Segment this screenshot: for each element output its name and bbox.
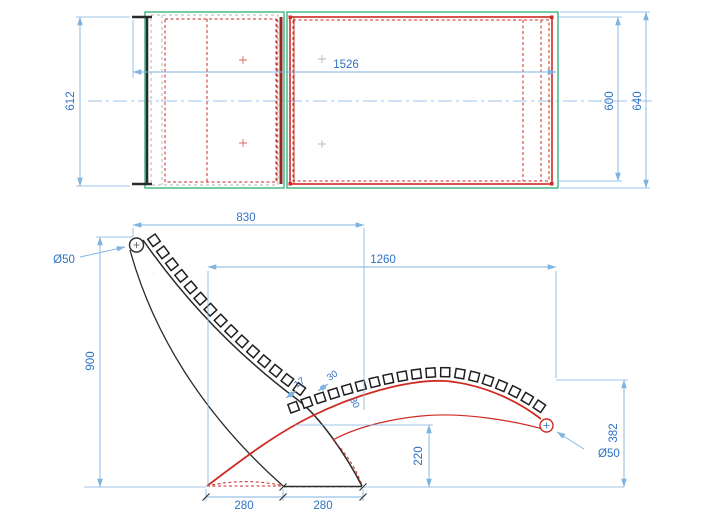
slat: [533, 400, 545, 412]
slat: [455, 369, 465, 379]
dim-seat-span-text: 1260: [370, 254, 396, 266]
cad-canvas: 1526 612 600 640: [0, 0, 725, 514]
dim-slat-pitch-text: 30: [325, 368, 340, 383]
slat: [509, 386, 521, 398]
marker-cross-gray-2: [318, 140, 326, 148]
seat-hidden-ground: [212, 482, 280, 485]
hidden-bed-left: [165, 19, 276, 182]
slat: [157, 246, 170, 259]
side-view: ··· ··· 830 1260 900 382: [53, 212, 628, 512]
leader-backrest-tube: Ø50: [53, 247, 125, 266]
slat: [441, 368, 450, 377]
slat: [288, 401, 300, 413]
slat: [411, 369, 421, 379]
slat: [469, 371, 480, 382]
dim-bed-width: 600: [558, 17, 622, 181]
marker-cross-red-2: [239, 139, 247, 147]
slat: [247, 345, 260, 358]
slat: [355, 380, 366, 391]
dim-base-chain: 280 280: [203, 489, 367, 512]
slat: [194, 292, 207, 305]
seat-upper-curve: [207, 381, 541, 486]
slat: [342, 384, 353, 395]
dim-backrest-tube-text: Ø50: [53, 254, 75, 266]
technical-drawing-svg: 1526 612 600 640: [0, 0, 725, 514]
slat: [315, 392, 326, 403]
micro-annotation-backrest: ···: [151, 271, 156, 275]
slat: [496, 380, 508, 392]
micro-annotation-seat-tip: ···: [526, 416, 531, 421]
dim-seat-under-height: 220: [295, 425, 433, 487]
slat: [166, 258, 179, 271]
dim-seat-tube-text: Ø50: [598, 448, 620, 460]
slat: [521, 392, 533, 404]
backrest-slats: [148, 234, 306, 395]
dim-overall-length: 1526: [133, 20, 556, 78]
dim-overall-length-text: 1526: [333, 59, 359, 71]
frame-right-outline: [287, 12, 558, 188]
dim-overall-width-text: 640: [632, 91, 644, 110]
slat: [175, 270, 188, 283]
bed-outline: [290, 17, 552, 184]
top-view: 1526 612 600 640: [65, 12, 652, 188]
slat: [383, 374, 394, 385]
slat: [204, 303, 217, 316]
dim-seat-tip-height-text: 382: [608, 423, 620, 442]
slat: [397, 371, 407, 381]
dim-base-rear-text: 280: [313, 500, 332, 512]
dim-backrest-height-text: 900: [85, 351, 97, 370]
seat-profile: [207, 381, 553, 486]
dim-slat-depth-text: 30: [347, 396, 361, 410]
slat: [148, 234, 161, 247]
seat-lower-curve: [333, 415, 550, 440]
hidden-frame-left: [151, 15, 278, 185]
frame-left-outline: [145, 12, 284, 188]
slat: [214, 314, 227, 327]
slat: [426, 368, 436, 378]
dim-backrest-height: 900: [85, 237, 133, 487]
slat: [301, 397, 312, 408]
bed-corner-grips: [289, 16, 554, 186]
marker-cross-gray-1: [318, 55, 326, 63]
dim-seat-under-height-text: 220: [413, 446, 425, 465]
slat: [236, 335, 249, 348]
hidden-bed-right: [293, 20, 549, 181]
slat: [328, 388, 339, 399]
dim-bed-width-text: 600: [604, 91, 616, 110]
slat: [225, 325, 238, 338]
dim-frame-width-text: 612: [65, 91, 77, 110]
backrest-outer-curve: [130, 250, 283, 486]
headrest-end-bracket: [132, 17, 152, 184]
backrest-profile: [130, 238, 363, 487]
dim-backrest-span-text: 830: [236, 212, 255, 224]
marker-cross-red-1: [239, 56, 247, 64]
dim-seat-tip-height: 382: [556, 380, 628, 487]
slat: [369, 377, 380, 388]
slat: [269, 364, 282, 377]
dim-base-front-text: 280: [234, 500, 253, 512]
slat: [184, 281, 197, 294]
slat: [482, 375, 493, 386]
slat: [258, 355, 271, 368]
slat: [281, 374, 294, 387]
dim-frame-width: 612: [65, 17, 130, 186]
